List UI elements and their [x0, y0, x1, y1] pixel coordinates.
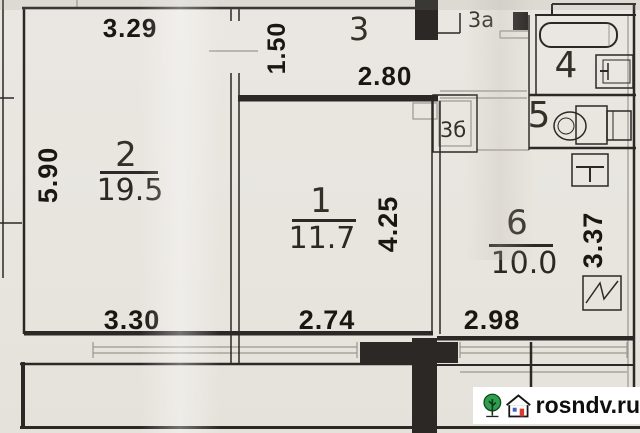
room-4-number: 4 — [548, 48, 584, 84]
toilet-icon — [554, 106, 631, 144]
dim-room6-height: 3.37 — [580, 195, 610, 285]
room-6-number: 6 — [497, 206, 537, 240]
house-icon — [504, 391, 532, 421]
room-1-area: 11.7 — [286, 224, 358, 254]
zone-3a-label: 3а — [461, 10, 501, 31]
dim-room1-height: 4.25 — [375, 179, 405, 269]
room-6-area: 10.0 — [486, 249, 562, 279]
room-1-number: 1 — [301, 184, 341, 218]
tree-icon — [481, 391, 504, 421]
dim-room6-width: 2.98 — [450, 307, 534, 334]
zone-3b-label: 3б — [435, 120, 471, 141]
dim-room2-bottom: 3.30 — [90, 307, 174, 334]
dim-room2-width: 3.29 — [85, 15, 175, 41]
room-2-area: 19.5 — [92, 176, 168, 206]
dim-hall3-width: 1.50 — [265, 8, 291, 88]
dim-hall3-length: 2.80 — [345, 63, 425, 89]
room-3-number: 3 — [344, 13, 374, 45]
watermark-domain: rosndv.ru — [536, 392, 640, 419]
floor-plan: 2 19.5 1 11.7 6 10.0 3 4 5 3а 3б 3.29 1.… — [0, 0, 640, 433]
dim-room1-width: 2.74 — [285, 307, 369, 334]
duct-icon — [572, 154, 608, 186]
bathtub-icon — [540, 23, 617, 47]
room-5-number: 5 — [524, 98, 554, 134]
room-2-number: 2 — [106, 138, 146, 172]
dim-room2-height: 5.90 — [35, 130, 65, 220]
watermark-logo: rosndv.ru — [473, 387, 640, 424]
